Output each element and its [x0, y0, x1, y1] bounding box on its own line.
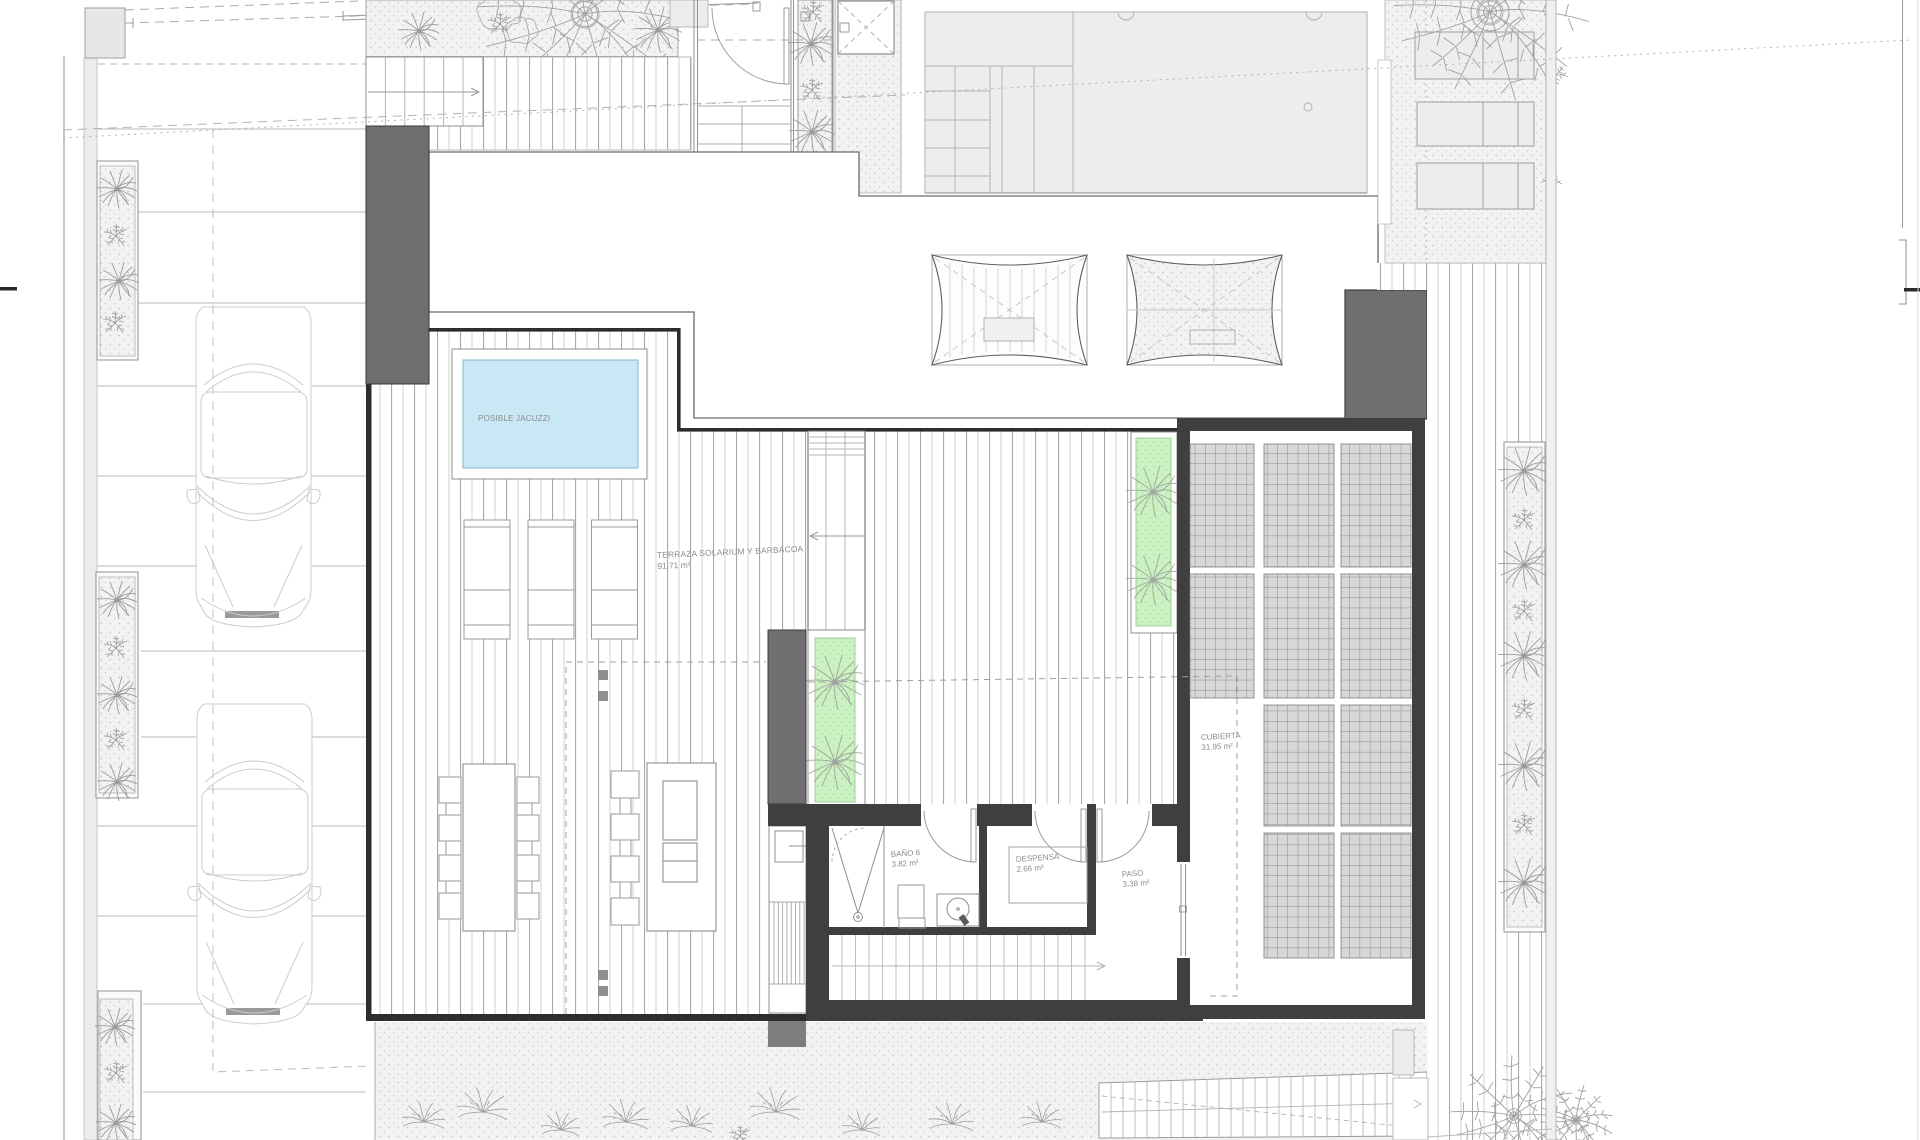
svg-text:POSIBLE JACUZZI: POSIBLE JACUZZI — [478, 414, 550, 423]
svg-text:PASO: PASO — [1122, 869, 1144, 879]
svg-text:3.38 m²: 3.38 m² — [1122, 878, 1150, 889]
svg-text:2.66 m²: 2.66 m² — [1016, 863, 1044, 874]
svg-text:91.71 m²: 91.71 m² — [657, 560, 691, 571]
svg-text:31.95 m²: 31.95 m² — [1201, 741, 1233, 752]
svg-text:3.82 m²: 3.82 m² — [891, 858, 919, 869]
